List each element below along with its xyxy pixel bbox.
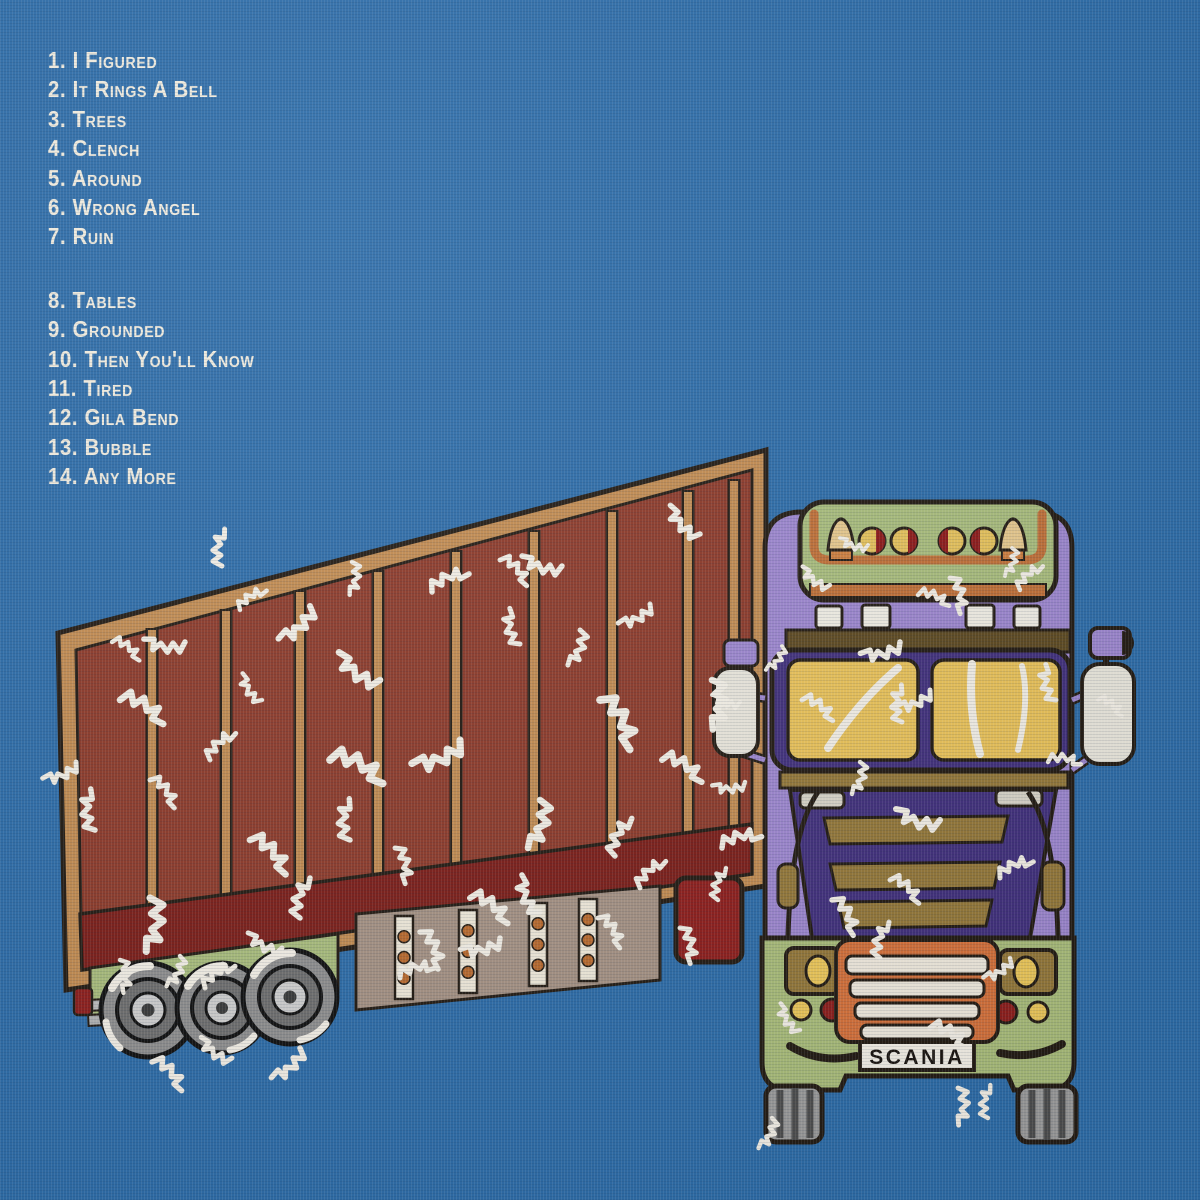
track-item: 11. Tired <box>48 374 254 403</box>
roof-round-light <box>891 528 917 554</box>
track-item: 13. Bubble <box>48 433 254 462</box>
tail-light <box>676 878 742 962</box>
album-back-cover: SCANIA <box>0 0 1200 1200</box>
side-marker-light <box>74 988 92 1015</box>
track-item: 8. Tables <box>48 286 254 315</box>
track-item: 4. Clench <box>48 134 254 163</box>
fender-vent-right <box>1042 862 1064 910</box>
grille-slat <box>850 980 984 997</box>
cab-marker-light <box>1014 606 1040 628</box>
vent-strip <box>780 772 1068 788</box>
headlight-right <box>1014 957 1038 987</box>
wheel <box>243 950 337 1044</box>
roof-round-light <box>971 528 997 554</box>
fog-light <box>1028 1002 1048 1022</box>
track-item: 3. Trees <box>48 105 254 134</box>
track-item: 10. Then You'll Know <box>48 345 254 374</box>
fender-vent-left <box>778 864 798 908</box>
track-item: 2. It Rings A Bell <box>48 75 254 104</box>
hood-slat-silver <box>800 792 844 808</box>
fog-light <box>791 1000 811 1020</box>
track-item: 7. Ruin <box>48 222 254 251</box>
tracklist-side-b: 8. Tables 9. Grounded 10. Then You'll Kn… <box>48 286 283 492</box>
track-item: 12. Gila Bend <box>48 403 254 432</box>
front-tire-right <box>1018 1086 1076 1142</box>
track-item: 9. Grounded <box>48 315 254 344</box>
tracklist-side-a: 1. I Figured 2. It Rings A Bell 3. Trees… <box>48 46 283 252</box>
scania-plate-label: SCANIA <box>869 1046 965 1069</box>
cab-marker-light <box>966 605 994 628</box>
grille-slat <box>846 956 988 974</box>
track-item: 14. Any More <box>48 462 254 491</box>
headlight-left <box>806 956 830 986</box>
hood-slat-gold <box>838 900 992 928</box>
track-item: 5. Around <box>48 164 254 193</box>
roof-round-light <box>939 528 965 554</box>
grille-slat <box>855 1003 979 1019</box>
track-item: 6. Wrong Angel <box>48 193 254 222</box>
track-item: 1. I Figured <box>48 46 254 75</box>
hood-slat-gold <box>830 862 1000 890</box>
trailer-wheels <box>101 950 337 1057</box>
tracklist: 1. I Figured 2. It Rings A Bell 3. Trees… <box>48 46 283 492</box>
cab-marker-light <box>816 606 842 628</box>
cab-marker-light <box>862 605 890 628</box>
